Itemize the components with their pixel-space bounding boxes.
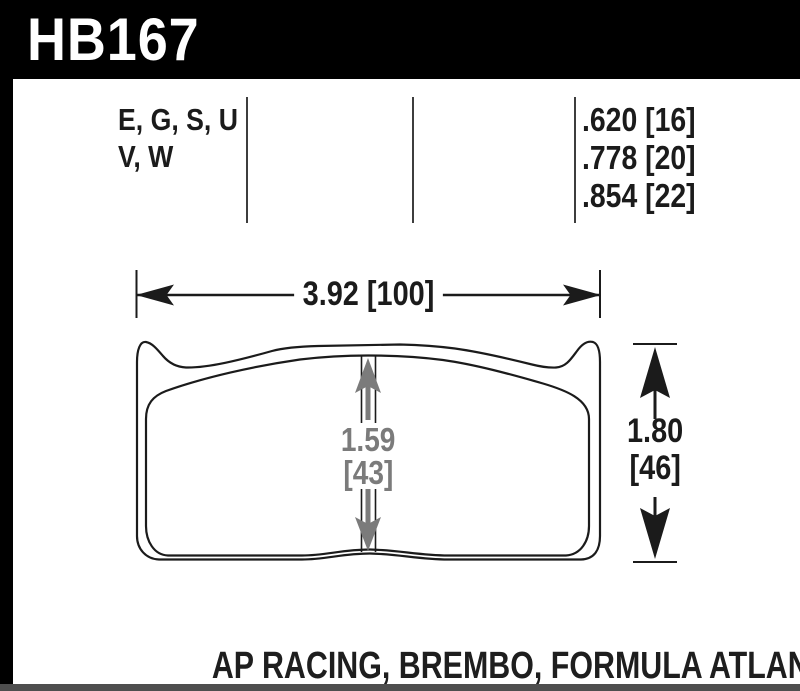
center-dim-inches: 1.59 (336, 423, 401, 456)
pad-diagram (0, 0, 800, 691)
center-dim-mm: [43] (338, 456, 398, 489)
center-dim-shaft-bottom (366, 489, 371, 524)
center-dim-shaft-top (366, 386, 371, 420)
height-dim-inches: 1.80 (627, 413, 683, 450)
center-dim-label: 1.59 [43] (318, 423, 418, 489)
height-dim-mm: [46] (629, 450, 680, 487)
height-dim-label: 1.80 [46] (605, 413, 705, 487)
application-caption: AP RACING, BREMBO, FORMULA ATLANTIC (131, 646, 691, 686)
spec-sheet-page: HB167 E, G, S, U V, W .620 [16] .778 [20… (0, 0, 800, 691)
width-dim-label: 3.92 [100] (238, 277, 498, 311)
